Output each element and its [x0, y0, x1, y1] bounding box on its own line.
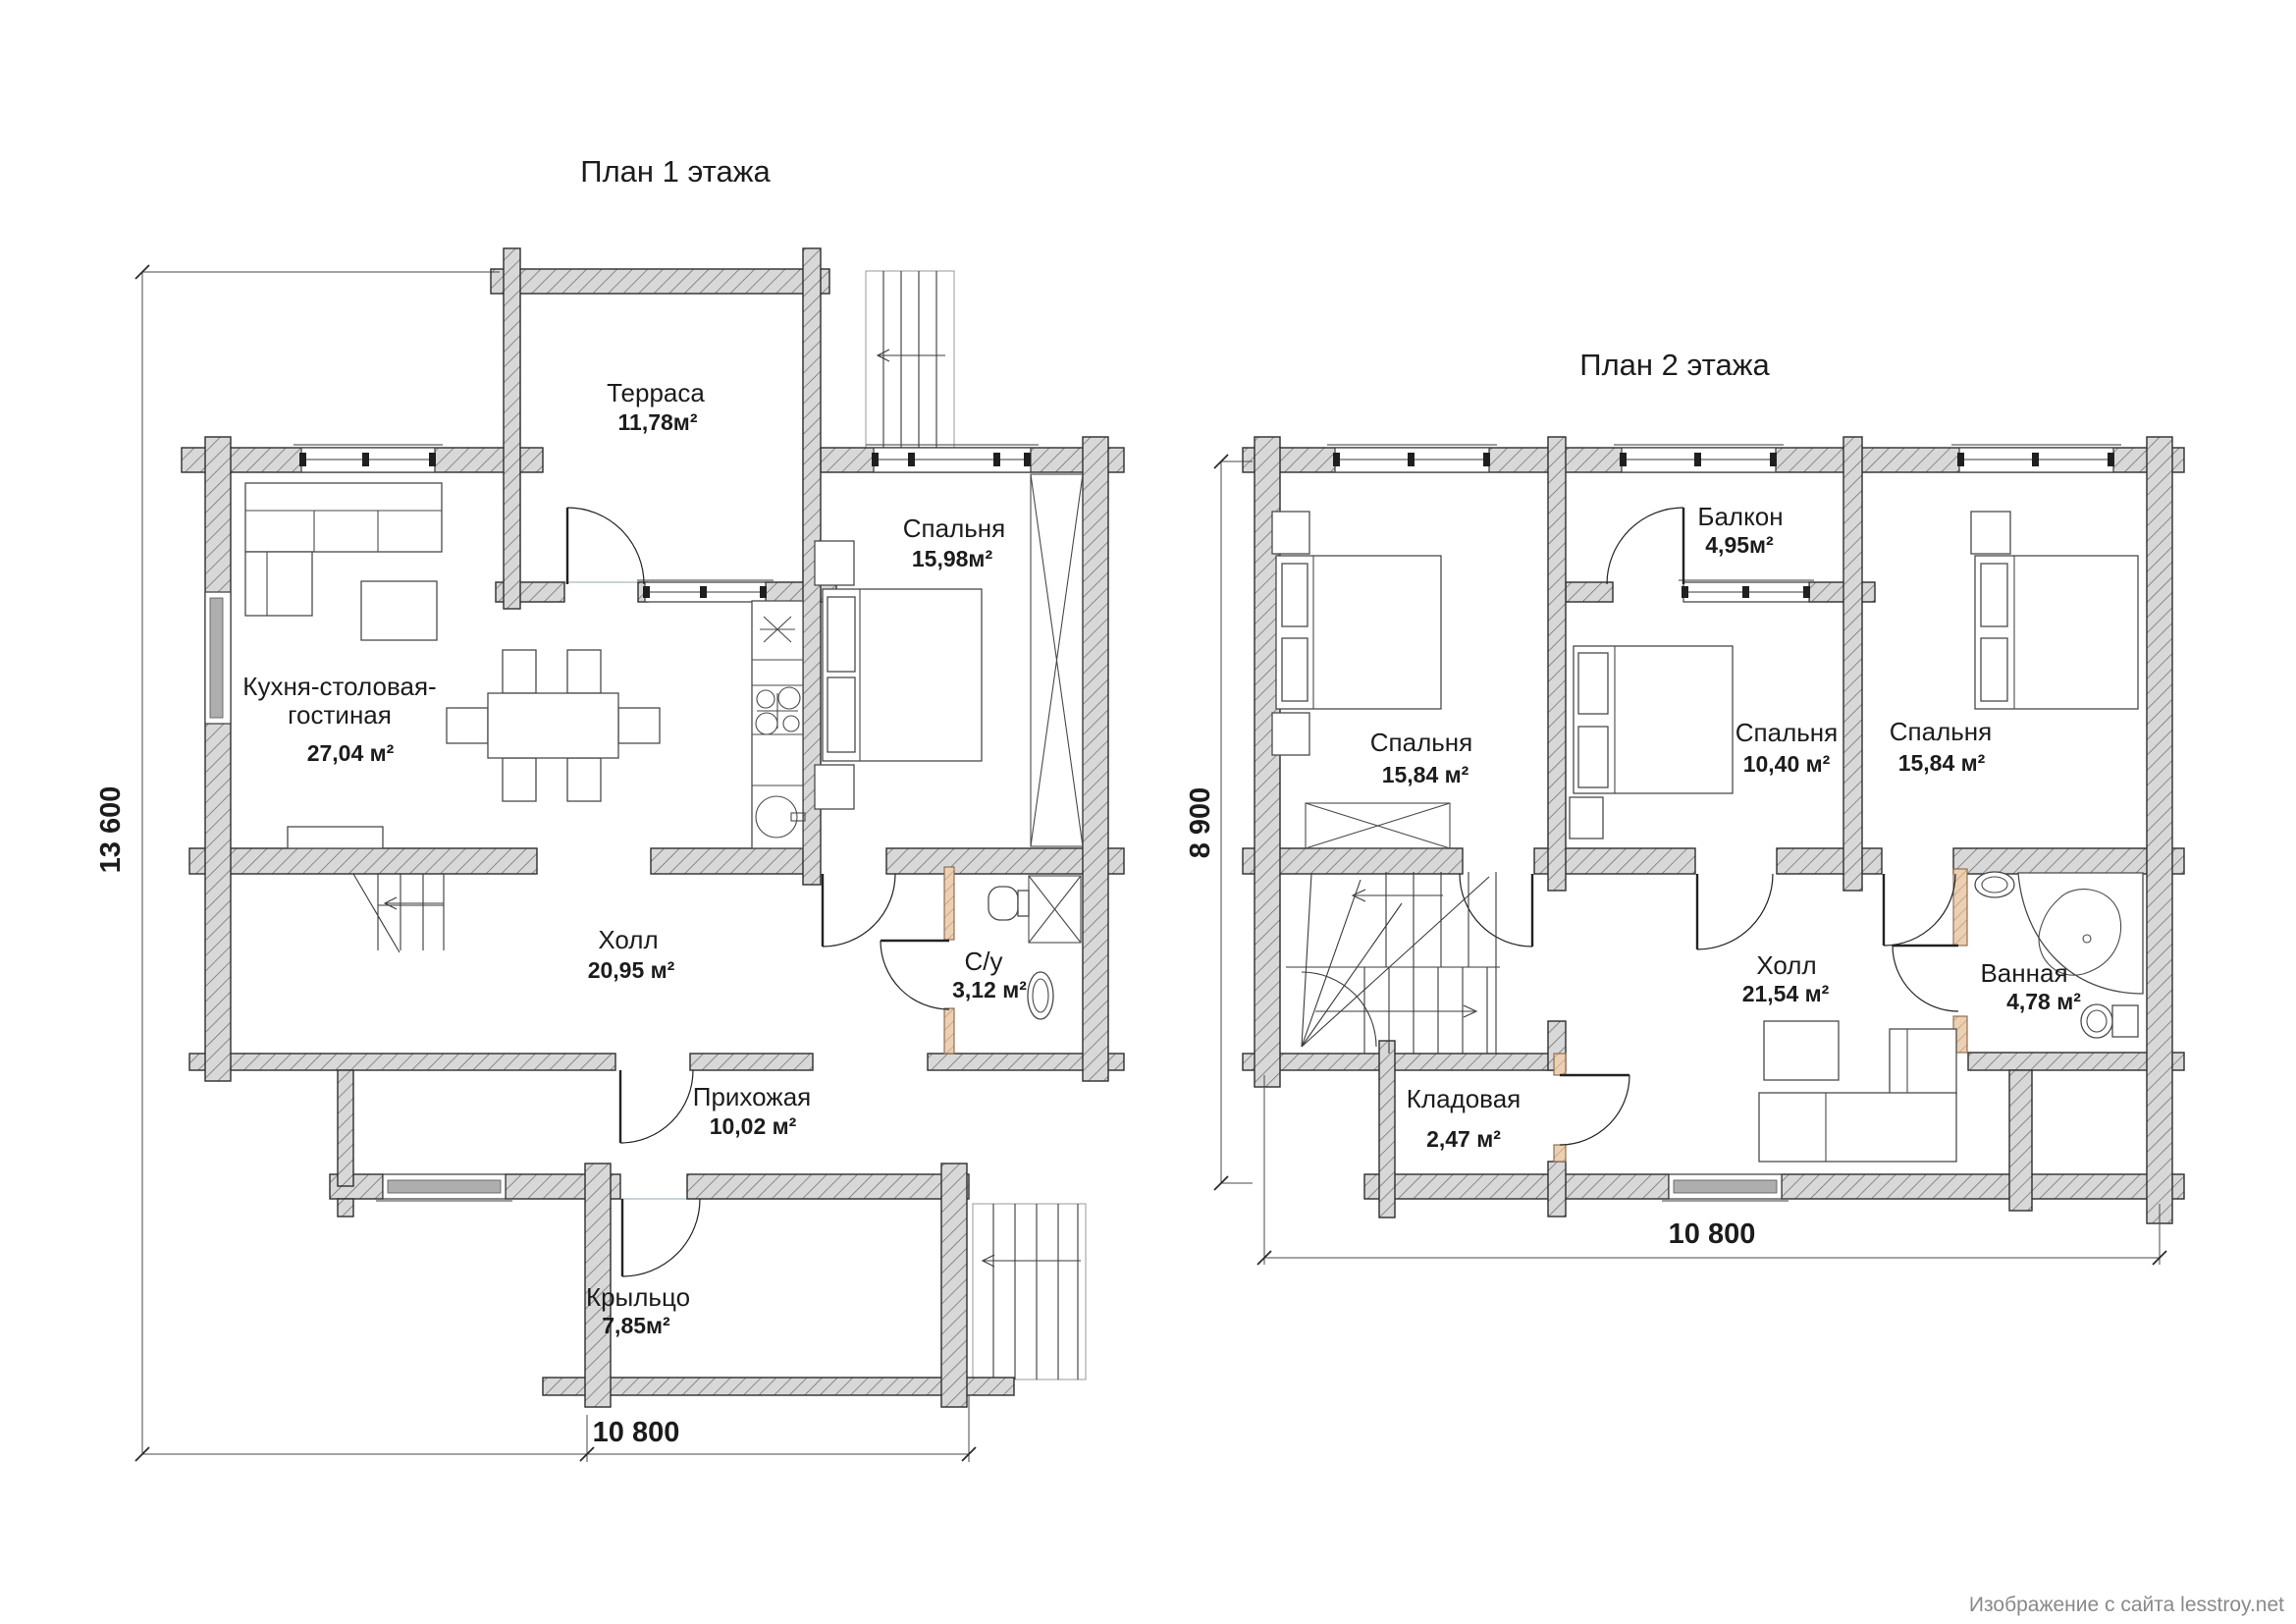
floor1-wc-area: 3,12 м² [952, 977, 1027, 1002]
floor2-width-dimension: 10 800 [1669, 1218, 1756, 1250]
floor2-balcony-label: Балкон [1697, 502, 1783, 531]
floor1-plan: 13 600 10 800 План 1 этажа Терраса 11,78… [95, 154, 1124, 1462]
floor2-height-dimension: 8 900 [1185, 787, 1216, 859]
floor2-bedroom-left-label: Спальня [1370, 728, 1472, 757]
floor2-hall-label: Холл [1756, 950, 1816, 980]
floor2-balcony-area: 4,95м² [1705, 532, 1774, 558]
floor1-bedroom-label: Спальня [903, 514, 1005, 543]
floor1-entry-area: 10,02 м² [710, 1113, 797, 1139]
floor2-hall-area: 21,54 м² [1742, 981, 1830, 1006]
floor1-exterior-stairs-top [866, 271, 954, 448]
floor1-title: План 1 этажа [580, 154, 771, 189]
floor1-hall-label: Холл [598, 925, 658, 954]
floor1-width-dimension: 10 800 [593, 1417, 680, 1448]
floor2-storage-area: 2,47 м² [1426, 1126, 1501, 1152]
floor1-kitchen-area: 27,04 м² [307, 740, 395, 766]
floor1-height-dimension: 13 600 [95, 786, 127, 874]
floor1-kitchen-label-line2: гостиная [288, 700, 392, 730]
floor2-title: План 2 этажа [1579, 348, 1770, 382]
floor1-kitchen-label-line1: Кухня-столовая- [242, 672, 436, 701]
floor2-bath-label: Ванная [1980, 958, 2067, 988]
floor2-bath-area: 4,78 м² [2006, 989, 2081, 1014]
floor2-bedroom-mid-label: Спальня [1735, 718, 1838, 747]
floor1-bedroom-area: 15,98м² [912, 546, 993, 571]
floor1-porch-label: Крыльцо [586, 1282, 690, 1312]
floor2-bedroom-right-label: Спальня [1890, 717, 1992, 746]
floor2-plan: 8 900 10 800 План 2 этажа Балкон 4,95м² … [1185, 348, 2184, 1265]
floor2-storage-label: Кладовая [1407, 1084, 1521, 1113]
floor2-bedroom-right-area: 15,84 м² [1898, 750, 1986, 776]
floor1-entry-label: Прихожая [693, 1082, 811, 1111]
floor1-stairs [353, 874, 444, 952]
floor1-exterior-stairs-bottom [973, 1204, 1086, 1380]
watermark-text: Изображение с сайта lesstroy.net [1969, 1594, 2284, 1616]
floor2-doors [1460, 508, 1958, 1145]
floorplan-drawing: 13 600 10 800 План 1 этажа Терраса 11,78… [0, 0, 2296, 1624]
floor1-terrace-area: 11,78м² [618, 409, 698, 435]
floor2-bedroom-mid-area: 10,40 м² [1743, 751, 1831, 777]
floor1-wc-label: С/у [965, 947, 1003, 976]
floor2-bedroom-left-area: 15,84 м² [1382, 762, 1469, 787]
floor-plan-page: 13 600 10 800 План 1 этажа Терраса 11,78… [0, 0, 2296, 1624]
floor1-hall-area: 20,95 м² [588, 957, 675, 983]
floor1-porch-area: 7,85м² [602, 1313, 670, 1338]
floor2-stairs [1286, 872, 1500, 1054]
floor1-terrace-label: Терраса [607, 378, 705, 407]
